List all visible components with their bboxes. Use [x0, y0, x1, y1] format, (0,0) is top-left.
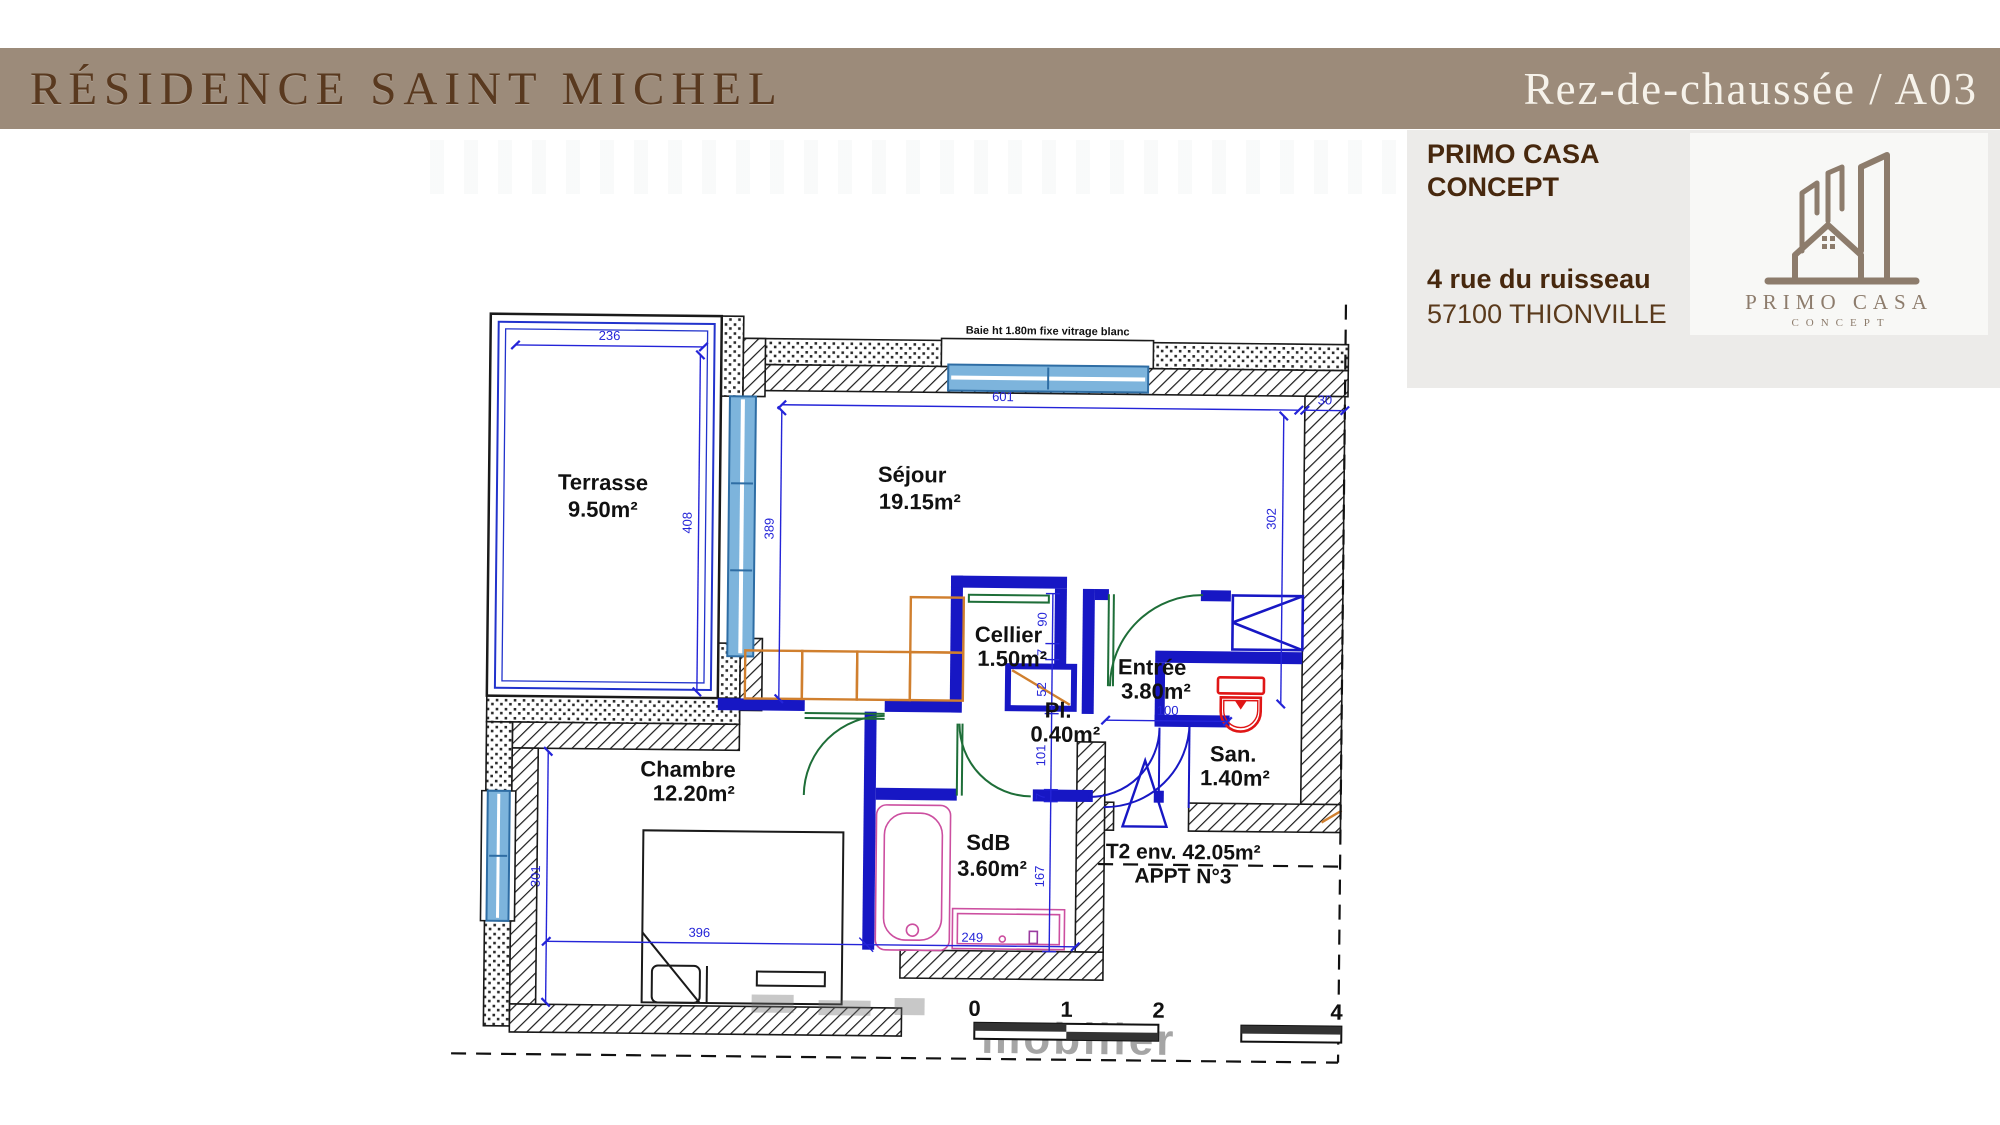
room-chambre-name: Chambre: [640, 756, 736, 782]
bathtub-icon: [875, 805, 951, 951]
dim-sejour-left-height: 389: [761, 518, 776, 540]
room-chambre-area: 12.20m²: [653, 780, 735, 806]
room-sejour-name: Séjour: [878, 462, 947, 488]
floor-plan: 236 408 389 601 30 302 90 7 52 101 7 167…: [0, 0, 2000, 1125]
dim-chain-4: 7: [1033, 793, 1048, 800]
apartment-type-label: T2 env. 42.05m²: [1106, 840, 1261, 865]
dim-chain-5: 167: [1032, 866, 1047, 888]
room-pl-area: 0.40m²: [1030, 721, 1100, 747]
apartment-number-label: APPT N°3: [1134, 864, 1231, 888]
room-cellier-name: Cellier: [975, 622, 1043, 648]
room-san-name: San.: [1210, 741, 1257, 766]
page: RÉSIDENCE SAINT MICHEL Rez-de-chaussée /…: [0, 0, 2000, 1125]
room-sdb-area: 3.60m²: [957, 856, 1027, 882]
room-pl-name: Pl.: [1045, 698, 1072, 723]
bay-window-icon: [727, 396, 756, 656]
dim-chain-2: 52: [1034, 682, 1049, 697]
san-cupboard: [1232, 595, 1303, 650]
chambre-window-icon: [486, 791, 509, 921]
room-terrasse-name: Terrasse: [558, 469, 648, 495]
scale-0: 0: [968, 996, 981, 1021]
dim-chambre-width: 396: [688, 925, 710, 940]
scale-4: 4: [1330, 1000, 1343, 1025]
toilet-icon: [1217, 677, 1264, 731]
dim-chambre-height: 301: [528, 865, 543, 887]
dim-terrasse-depth: 408: [680, 512, 695, 534]
room-sdb-name: SdB: [966, 830, 1010, 855]
dim-wall-thickness: 30: [1318, 392, 1333, 407]
window-note: Baie ht 1.80m fixe vitrage blanc: [966, 325, 1130, 339]
room-san-area: 1.40m²: [1200, 765, 1270, 791]
room-entree-area: 3.80m²: [1121, 678, 1191, 704]
boundary-dashed-lines: [451, 295, 1346, 1062]
dim-chain-3: 101: [1033, 745, 1048, 767]
dim-terrasse-width: 236: [599, 328, 621, 343]
dim-entree-width: 100: [1157, 703, 1179, 718]
room-terrasse-area: 9.50m²: [568, 497, 638, 523]
cellier-shelf: [969, 595, 1049, 603]
dim-sejour-width: 601: [992, 389, 1014, 404]
scale-1: 1: [1060, 997, 1073, 1022]
sejour-top-window-icon: [948, 364, 1148, 392]
dim-sdb-width: 249: [961, 930, 983, 945]
dim-sejour-right-height: 302: [1264, 508, 1279, 530]
scale-2: 2: [1152, 998, 1165, 1023]
bed-icon: [642, 830, 844, 1004]
room-sejour-area: 19.15m²: [879, 489, 961, 515]
room-cellier-area: 1.50m²: [977, 646, 1047, 672]
room-entree-name: Entrée: [1118, 654, 1187, 680]
